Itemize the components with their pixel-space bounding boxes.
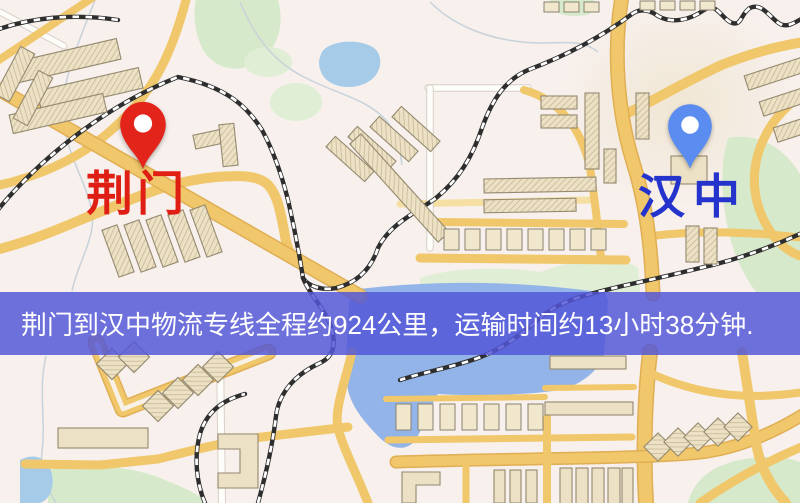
route-info-banner: 荆门到汉中物流专线全程约924公里，运输时间约13小时38分钟. [0,292,800,355]
map-canvas: 荆门 汉中 荆门到汉中物流专线全程约924公里，运输时间约13小时38分钟. [0,0,800,503]
route-info-text: 荆门到汉中物流专线全程约924公里，运输时间约13小时38分钟. [0,305,753,342]
blue-location-pin-icon [667,103,713,170]
red-location-pin-icon [119,99,167,172]
destination-label: 汉中 [638,173,748,220]
destination-pin[interactable] [667,103,713,170]
origin-label: 荆门 [86,170,188,217]
map-background [0,0,800,503]
origin-pin[interactable] [119,99,167,172]
